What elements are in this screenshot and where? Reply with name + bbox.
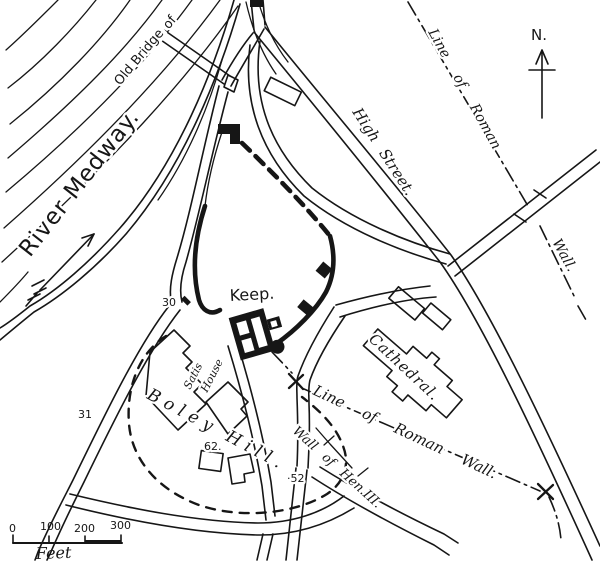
label-high-street: High Street.: [348, 104, 419, 199]
scale-unit-label: Feet: [34, 543, 72, 563]
rochester-map: River Medway. Site of Old Bridge High St…: [0, 0, 600, 564]
scale-tick-100: 100: [40, 520, 61, 533]
keep-building: [229, 305, 289, 365]
label-river-medway: River Medway.: [14, 105, 145, 262]
scale-tick-300: 300: [110, 519, 131, 532]
east-wall: [276, 236, 333, 344]
map-page: River Medway. Site of Old Bridge High St…: [0, 0, 600, 564]
scale-tick-200: 200: [74, 522, 95, 535]
label-keep: Keep.: [229, 284, 275, 305]
label-line-of-roman-ne: Line of Roman: [424, 25, 504, 152]
scale-tick-0: 0: [9, 522, 16, 535]
west-wall: [195, 206, 220, 312]
label-north: N.: [531, 26, 547, 44]
ref-number-62: 62.: [204, 440, 222, 453]
map-labels: River Medway. Site of Old Bridge High St…: [9, 13, 579, 563]
label-wall-ne: Wall.: [549, 236, 580, 274]
gate-mark: [181, 296, 191, 306]
ref-number-30: 30: [162, 296, 176, 309]
castle-northeast-road: [248, 41, 450, 264]
southeast-road: [312, 467, 458, 555]
crossing-x-castle: [289, 374, 303, 389]
north-arrow: [529, 50, 555, 118]
label-satis-house-2: House: [198, 356, 226, 395]
ref-number-52: ·52: [287, 472, 305, 485]
label-cathedral: Cathedral.: [365, 330, 443, 405]
old-bridge-symbol: [158, 30, 238, 92]
ref-number-31: 31: [78, 408, 92, 421]
label-boley-hill: Boley Hill.: [143, 384, 291, 475]
riverside-road: [170, 86, 228, 302]
label-old-bridge: Old Bridge: [112, 26, 168, 88]
northeast-road: [448, 150, 600, 276]
